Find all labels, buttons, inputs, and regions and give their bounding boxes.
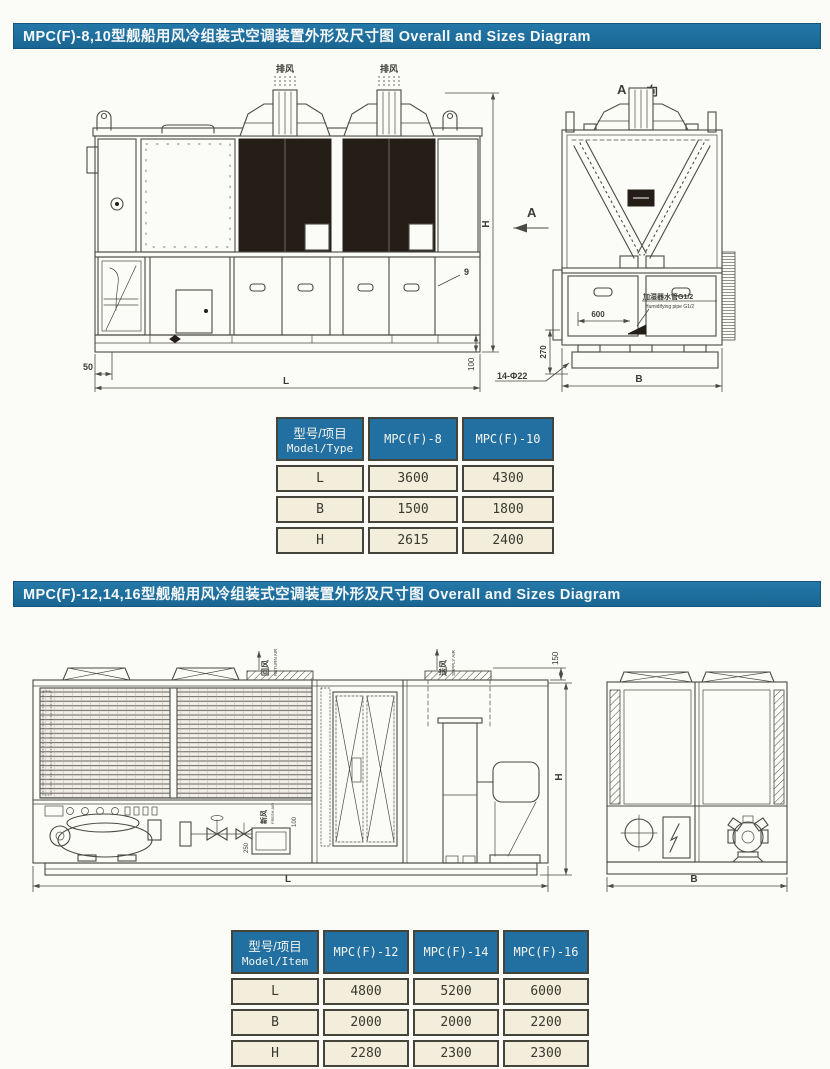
table2-corner-header: 型号/项目 Model/Item	[231, 930, 319, 974]
table-cell: 2000	[413, 1009, 499, 1036]
row-label: L	[231, 978, 319, 1005]
dim-270-label: 270	[539, 345, 548, 359]
dim-h2-label: H	[554, 773, 565, 780]
dim-100-label-2: 100	[292, 816, 298, 827]
supply-air-label-cn: 送风	[438, 660, 448, 677]
pipe-note-cn: 加湿器水管G1/2	[642, 292, 693, 301]
dim-h-label: H	[481, 220, 492, 227]
drain-corner	[628, 325, 646, 334]
end-view-unit-2: B	[607, 672, 787, 892]
table1-col-header-mpcf8: MPC(F)-8	[368, 417, 458, 461]
valve-assembly	[180, 816, 252, 847]
exhaust-air-label: 排风	[380, 63, 398, 74]
exhaust-fan-right: 排风	[344, 63, 434, 136]
table-row: L 4800 5200 6000	[231, 978, 589, 1005]
table2-col-header-mpcf16: MPC(F)-16	[503, 930, 589, 974]
table2-col-header-mpcf12: MPC(F)-12	[323, 930, 409, 974]
filter-section	[333, 692, 397, 846]
dimensions-table-1: 型号/项目 Model/Type MPC(F)-8 MPC(F)-10 L 36…	[272, 413, 558, 558]
compressor-assembly	[45, 806, 161, 861]
coil-fins-edge	[722, 252, 735, 340]
holes-note-label: 14-Φ22	[497, 371, 527, 381]
section1-banner: MPC(F)-8,10型舰船用风冷组装式空调装置外形及尺寸图 Overall a…	[13, 23, 821, 49]
roof-fan-cowls	[63, 668, 239, 680]
table-cell: 5200	[413, 978, 499, 1005]
front-view-unit: 排风 排风	[83, 63, 499, 392]
supply-fan-unit	[438, 718, 540, 863]
return-air-label-en: RETURN AIR	[273, 648, 278, 676]
dim-100-label: 100	[467, 357, 476, 371]
return-air-duct	[247, 671, 313, 680]
table-cell: 2000	[323, 1009, 409, 1036]
front-view-unit-2: 回风 RETURN AIR 送风 SUPPLY AIR 150	[33, 648, 572, 892]
corner-bracket-right	[774, 690, 784, 804]
view-a-title: A	[617, 82, 627, 97]
table-row: H 2615 2400	[276, 527, 554, 554]
dim-600-label: 600	[591, 310, 605, 319]
end-view-2-dimensions: B	[607, 874, 787, 892]
table-cell: 1500	[368, 496, 458, 523]
table1-col-header-mpcf10: MPC(F)-10	[462, 417, 554, 461]
dim-250-label: 250	[244, 842, 250, 853]
table-cell: 3600	[368, 465, 458, 492]
diagram-mpc12-16: 回风 RETURN AIR 送风 SUPPLY AIR 150	[0, 622, 830, 922]
row-label: B	[276, 496, 364, 523]
row-label: L	[276, 465, 364, 492]
corner-bracket-left	[610, 690, 620, 804]
side-view-dimensions: 600 加湿器水管G1/2 Humidifying pipe G1/2 270 …	[495, 292, 722, 392]
callout-9-label: 9	[464, 267, 469, 277]
table-cell: 2400	[462, 527, 554, 554]
dim-50-label: 50	[83, 362, 93, 372]
view-arrow-a-label: A	[527, 205, 537, 220]
table-row: B 1500 1800	[276, 496, 554, 523]
supply-air-duct	[425, 671, 491, 680]
table2-col-header-mpcf14: MPC(F)-14	[413, 930, 499, 974]
exhaust-fan-left: 排风	[240, 63, 330, 136]
row-label: B	[231, 1009, 319, 1036]
table-cell: 2200	[503, 1009, 589, 1036]
electrical-box	[663, 817, 690, 858]
view-arrow-a	[514, 224, 527, 233]
dim-l-label: L	[283, 376, 289, 387]
corner-cn: 型号/项目	[235, 936, 315, 955]
table-cell: 2615	[368, 527, 458, 554]
fresh-air-label-en: FRESH AIR	[270, 803, 275, 824]
table-cell: 2280	[323, 1040, 409, 1067]
supply-air-label-en: SUPPLY AIR	[451, 649, 456, 676]
table-cell: 2300	[413, 1040, 499, 1067]
diagram-mpc8-10: 排风 排风	[0, 52, 830, 402]
corner-en: Model/Type	[280, 442, 360, 455]
row-label: H	[231, 1040, 319, 1067]
return-air-label-cn: 回风	[261, 660, 270, 676]
fresh-air-label-cn: 新风	[259, 810, 268, 824]
section2-banner: MPC(F)-12,14,16型舰船用风冷组装式空调装置外形及尺寸图 Overa…	[13, 581, 821, 607]
dimensions-table-2: 型号/项目 Model/Item MPC(F)-12 MPC(F)-14 MPC…	[227, 926, 593, 1069]
table-cell: 4800	[323, 978, 409, 1005]
table-row: L 3600 4300	[276, 465, 554, 492]
dim-150-label: 150	[551, 651, 560, 665]
dim-l2-label: L	[285, 874, 291, 885]
table-cell: 4300	[462, 465, 554, 492]
table1-corner-header: 型号/项目 Model/Type	[276, 417, 364, 461]
table-cell: 6000	[503, 978, 589, 1005]
table-row: H 2280 2300 2300	[231, 1040, 589, 1067]
table-cell: 2300	[503, 1040, 589, 1067]
table-cell: 1800	[462, 496, 554, 523]
catalog-page: MPC(F)-8,10型舰船用风冷组装式空调装置外形及尺寸图 Overall a…	[0, 0, 830, 1069]
corner-cn: 型号/项目	[280, 423, 360, 442]
dim-b-label: B	[635, 374, 642, 385]
compressor-end-view	[728, 816, 768, 862]
exhaust-air-label: 排风	[276, 63, 294, 74]
table-row: B 2000 2000 2200	[231, 1009, 589, 1036]
dim-b2-label: B	[690, 874, 697, 885]
porthole-gauge	[621, 815, 657, 851]
fresh-air-opening: 新风 FRESH AIR 100 250	[244, 803, 298, 854]
side-view-a: A 向 A	[495, 82, 735, 392]
row-label: H	[276, 527, 364, 554]
corner-en: Model/Item	[235, 955, 315, 968]
pipe-note-en: Humidifying pipe G1/2	[645, 304, 694, 310]
